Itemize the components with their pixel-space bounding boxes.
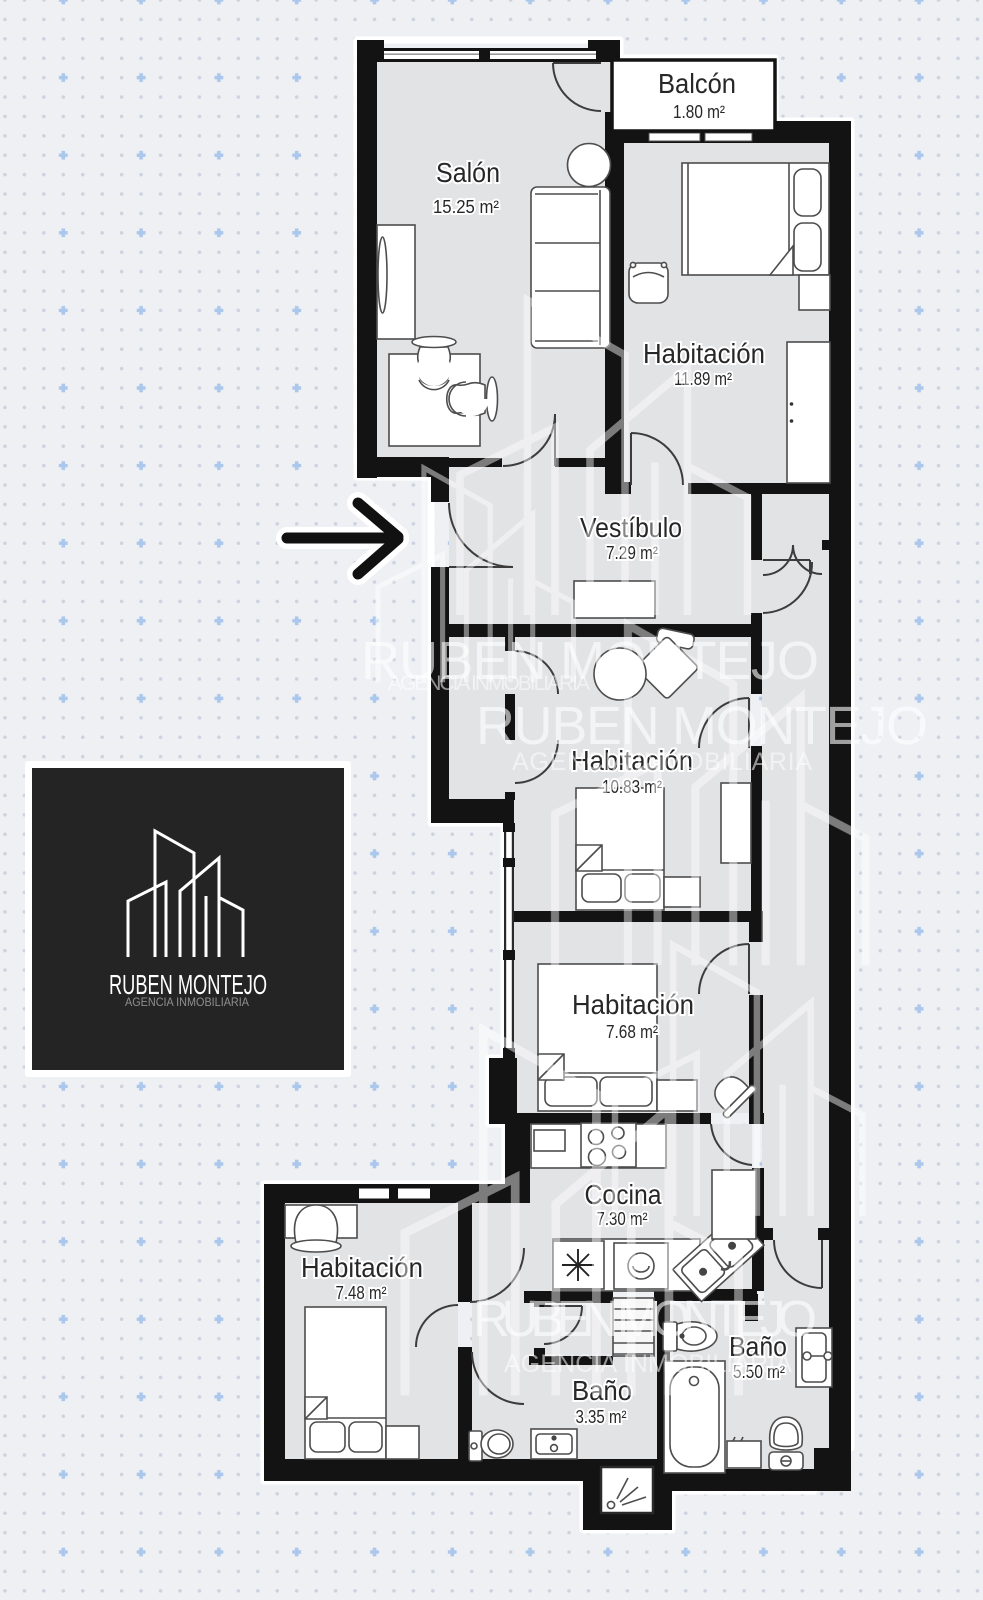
svg-text:Balcón: Balcón — [658, 68, 736, 99]
svg-text:AGENCIA INMOBILIARIA: AGENCIA INMOBILIARIA — [504, 1350, 792, 1378]
svg-text:7.48 m²: 7.48 m² — [336, 1283, 387, 1303]
svg-text:Vestíbulo: Vestíbulo — [580, 512, 682, 543]
svg-text:Habitación: Habitación — [643, 338, 765, 369]
svg-text:AGENCIA INMOBILIARIA: AGENCIA INMOBILIARIA — [125, 995, 249, 1009]
svg-text:15.25 m²: 15.25 m² — [433, 197, 499, 217]
svg-text:1.80 m²: 1.80 m² — [673, 102, 725, 122]
svg-text:RUBEN MONTEJO: RUBEN MONTEJO — [473, 1290, 817, 1347]
svg-text:3.35 m²: 3.35 m² — [576, 1407, 627, 1427]
svg-text:RUBEN MONTEJO: RUBEN MONTEJO — [476, 696, 928, 756]
svg-text:7.68 m²: 7.68 m² — [606, 1022, 658, 1042]
svg-text:7.29 m²: 7.29 m² — [606, 543, 658, 563]
svg-text:AGENCIA INMOBILIARIA: AGENCIA INMOBILIARIA — [512, 748, 812, 776]
svg-text:7.30 m²: 7.30 m² — [597, 1209, 648, 1229]
svg-text:Baño: Baño — [572, 1375, 632, 1406]
svg-text:AGENCIA INMOBILIARIA: AGENCIA INMOBILIARIA — [388, 672, 590, 695]
svg-text:Salón: Salón — [436, 157, 500, 188]
